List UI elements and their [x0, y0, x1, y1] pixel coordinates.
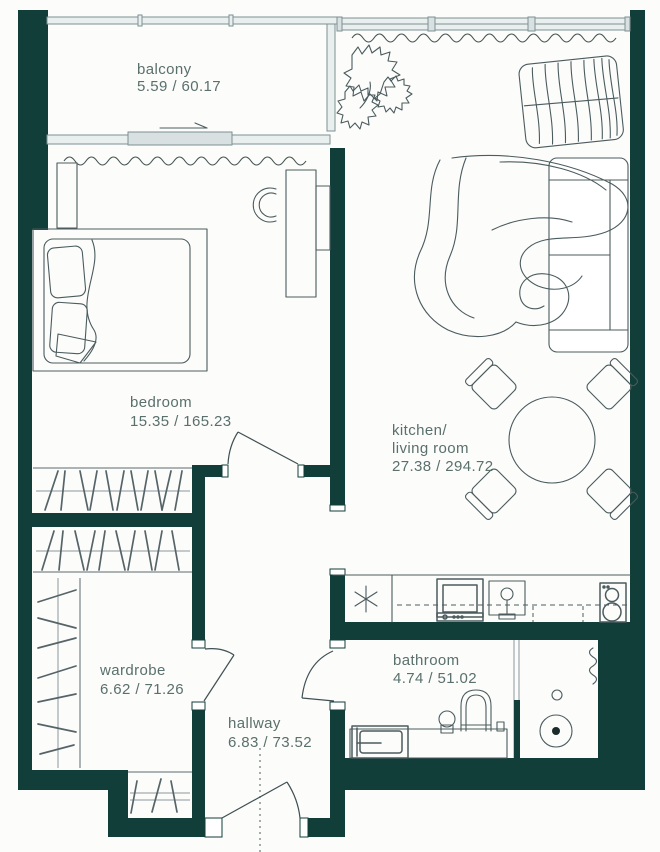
- threshold: [330, 702, 345, 710]
- wall: [192, 710, 205, 818]
- towel-radiator-icon: [590, 648, 597, 684]
- wall: [192, 467, 205, 640]
- wall: [108, 790, 128, 837]
- threshold: [222, 465, 228, 477]
- balcony-glazing: [47, 17, 337, 24]
- kitchen-living-label-line2: living room: [392, 440, 469, 457]
- curtain-icon: [64, 157, 306, 165]
- blanket-fold-icon: [56, 334, 96, 363]
- dining-chair-icon: [464, 467, 518, 521]
- wardrobe-area: 6.62 / 71.26: [100, 681, 184, 698]
- sliding-door-arrow-icon: [160, 123, 207, 128]
- hallway-label: hallway: [228, 715, 281, 732]
- clothes-hanger-icon: [38, 590, 76, 754]
- blanket-line: [84, 240, 96, 361]
- dining-table-icon: [509, 397, 595, 483]
- floor-plan-canvas: balcony 5.59 / 60.17 bedroom 15.35 / 165…: [0, 0, 660, 852]
- desk-shelf-icon: [316, 186, 330, 250]
- wall: [18, 513, 205, 527]
- bedroom-door-icon: [228, 432, 298, 464]
- floor-plan: balcony 5.59 / 60.17 bedroom 15.35 / 165…: [0, 0, 660, 852]
- entry-door-icon: [222, 782, 300, 818]
- hob-burner-icon: [355, 586, 377, 612]
- kitchen-living-area: 27.38 / 294.72: [392, 458, 494, 475]
- wardrobe-top-closet: [33, 531, 192, 572]
- dining-chair-icon: [464, 357, 518, 411]
- sliding-door-panel: [128, 132, 232, 145]
- desk-icon: [286, 170, 316, 297]
- wardrobe-label: wardrobe: [99, 662, 166, 679]
- bathroom-label: bathroom: [393, 652, 460, 669]
- door-thresholds: [192, 465, 345, 837]
- plant-icon: [337, 45, 412, 129]
- glazing-joint: [229, 15, 233, 26]
- living-room-furniture: [337, 45, 639, 521]
- room-labels: balcony 5.59 / 60.17 bedroom 15.35 / 165…: [99, 61, 494, 751]
- threshold: [330, 569, 345, 575]
- window-mullion: [528, 17, 535, 31]
- wardrobe-cabinet-icon: [57, 163, 77, 228]
- wall: [333, 622, 645, 640]
- wall: [630, 10, 645, 622]
- clothes-hanger-icon: [131, 779, 177, 813]
- balcony-side-glazing: [327, 24, 335, 131]
- window-post: [625, 17, 630, 31]
- shower-drain-icon: [540, 715, 572, 747]
- bedroom-furniture: [33, 163, 330, 371]
- balcony-area: 5.59 / 60.17: [137, 78, 221, 95]
- bed-icon: [33, 229, 207, 371]
- wall: [598, 640, 645, 758]
- wardrobe-side-closet: [38, 578, 80, 768]
- cooktop-icon: [600, 583, 626, 622]
- oven-icon: [437, 579, 483, 621]
- kitchen-sink-icon: [489, 581, 525, 619]
- balcony-window: [230, 135, 330, 144]
- threshold: [330, 640, 345, 648]
- threshold: [330, 505, 345, 511]
- wall: [18, 228, 32, 770]
- threshold: [300, 818, 308, 837]
- shower-valve-icon: [552, 690, 562, 700]
- bathroom-fixtures: [350, 640, 597, 758]
- glazing-joint: [138, 15, 142, 26]
- bedroom-closet-strip: [33, 468, 192, 510]
- kitchen-living-label-line1: kitchen/: [392, 422, 447, 439]
- wall: [330, 148, 345, 505]
- threshold: [205, 818, 222, 837]
- bedroom-area: 15.35 / 165.23: [130, 413, 232, 430]
- entry-closet-nook: [128, 772, 192, 813]
- curtain-icon: [352, 34, 616, 42]
- window-mullion: [428, 17, 435, 31]
- doors: [204, 432, 334, 852]
- wall: [333, 758, 645, 790]
- bathroom-door-icon: [302, 651, 334, 701]
- wall: [18, 10, 48, 230]
- wardrobe-door-icon: [204, 649, 234, 701]
- window-post: [337, 17, 342, 31]
- bedroom-label: bedroom: [130, 394, 192, 411]
- shower-partition-wall: [514, 700, 520, 758]
- wall: [128, 818, 205, 837]
- balcony-window: [47, 135, 130, 144]
- cushion-pile-icon: [518, 55, 624, 149]
- desk-chair-icon: [253, 188, 276, 222]
- pillow-icon: [47, 246, 86, 299]
- dining-chairs: [464, 357, 638, 520]
- kitchen-counter: [333, 575, 630, 622]
- hallway-area: 6.83 / 73.52: [228, 734, 312, 751]
- toilet-icon: [461, 690, 491, 731]
- pillow-icon: [49, 302, 87, 354]
- wall: [18, 770, 128, 790]
- bathroom-area: 4.74 / 51.02: [393, 670, 477, 687]
- threshold: [192, 702, 205, 710]
- balcony-label: balcony: [137, 61, 192, 78]
- threshold: [192, 640, 205, 648]
- washing-machine-icon: [352, 726, 408, 758]
- bathroom-accessory-icon: [497, 722, 504, 731]
- windows: [47, 15, 630, 145]
- walls: [18, 10, 645, 837]
- threshold: [298, 465, 304, 477]
- wall: [192, 465, 222, 477]
- bathroom-sink-icon: [439, 711, 455, 733]
